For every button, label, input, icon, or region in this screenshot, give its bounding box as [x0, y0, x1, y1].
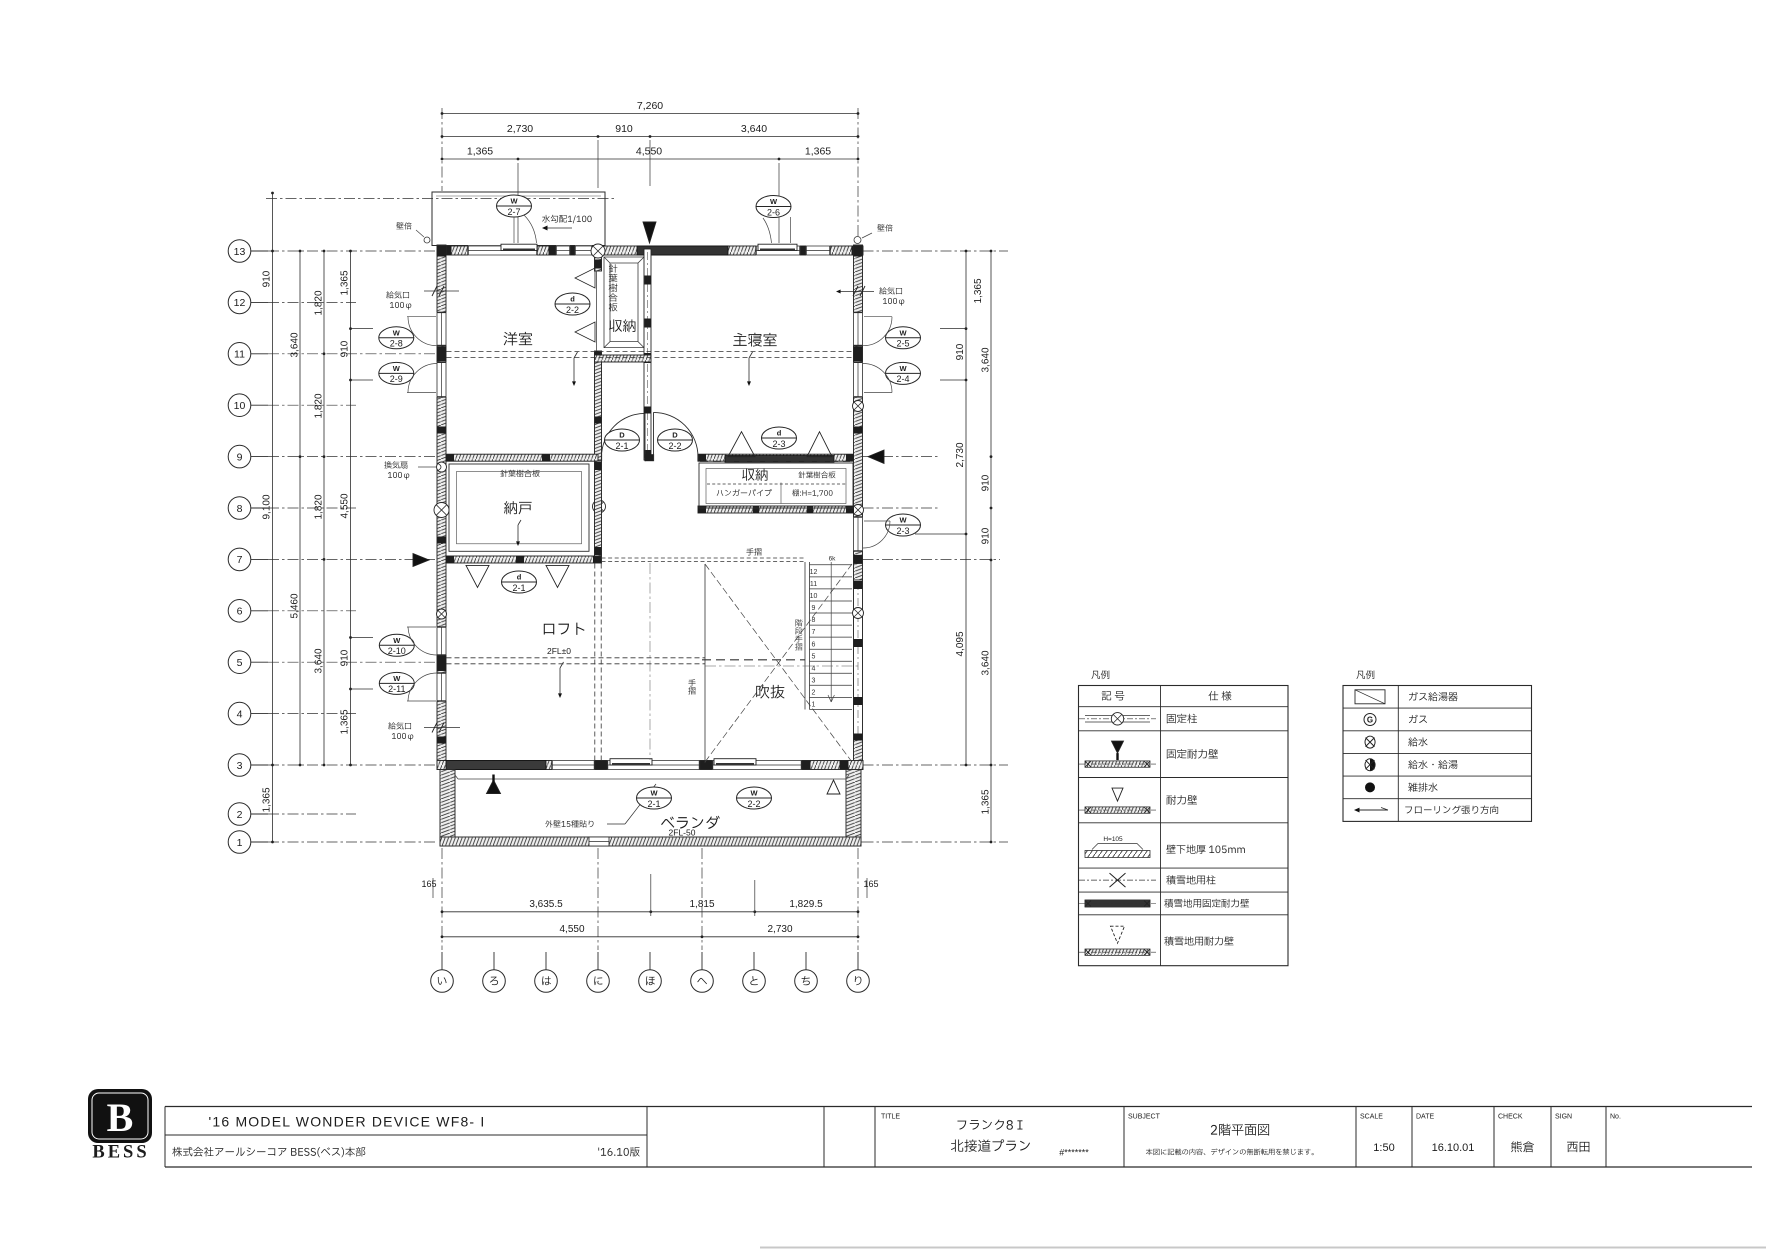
svg-text:1,820: 1,820 — [314, 494, 325, 519]
svg-text:2,730: 2,730 — [767, 924, 792, 935]
svg-text:3,640: 3,640 — [290, 332, 301, 357]
svg-text:TITLE: TITLE — [881, 1114, 900, 1121]
svg-text:G: G — [1367, 715, 1373, 724]
svg-text:2FL±0: 2FL±0 — [547, 646, 571, 656]
svg-text:4,550: 4,550 — [636, 145, 662, 157]
svg-text:1,365: 1,365 — [262, 787, 273, 812]
svg-text:9: 9 — [812, 605, 816, 612]
svg-text:910: 910 — [615, 123, 633, 135]
svg-text:2-7: 2-7 — [507, 207, 520, 217]
svg-text:6k: 6k — [829, 555, 837, 562]
svg-text:910: 910 — [955, 343, 966, 360]
svg-text:910: 910 — [340, 649, 351, 666]
svg-text:4: 4 — [812, 665, 816, 672]
svg-text:2FL-50: 2FL-50 — [669, 828, 696, 838]
svg-text:6: 6 — [237, 606, 243, 618]
svg-text:W: W — [510, 197, 518, 206]
svg-text:3: 3 — [812, 677, 816, 684]
svg-text:910: 910 — [262, 270, 273, 287]
svg-text:SIGN: SIGN — [1555, 1114, 1572, 1121]
svg-text:1,365: 1,365 — [340, 709, 351, 734]
svg-text:2-2: 2-2 — [668, 441, 681, 451]
svg-text:CHECK: CHECK — [1498, 1114, 1523, 1121]
svg-text:3,640: 3,640 — [981, 650, 992, 675]
svg-text:W: W — [899, 516, 907, 525]
svg-text:2-2: 2-2 — [566, 305, 579, 315]
svg-text:1,829.5: 1,829.5 — [789, 899, 823, 910]
svg-text:1,820: 1,820 — [314, 393, 325, 418]
svg-text:d: d — [517, 573, 522, 582]
svg-text:D: D — [619, 431, 625, 440]
svg-text:W: W — [650, 789, 658, 798]
svg-text:2-4: 2-4 — [896, 374, 909, 384]
svg-text:8: 8 — [237, 503, 243, 515]
svg-text:910: 910 — [340, 340, 351, 357]
svg-text:2,730: 2,730 — [955, 442, 966, 467]
svg-text:W: W — [393, 364, 401, 373]
svg-text:W: W — [899, 328, 907, 337]
svg-text:12: 12 — [810, 569, 818, 576]
svg-text:2-5: 2-5 — [896, 339, 909, 349]
svg-text:2,730: 2,730 — [507, 123, 533, 135]
svg-text:1: 1 — [237, 837, 243, 849]
svg-text:W: W — [770, 197, 778, 206]
svg-text:13: 13 — [234, 246, 246, 258]
svg-text:2-11: 2-11 — [388, 684, 405, 694]
svg-text:1:50: 1:50 — [1373, 1142, 1394, 1154]
svg-text:2-3: 2-3 — [896, 526, 909, 536]
svg-text:2-2: 2-2 — [747, 799, 760, 809]
svg-text:910: 910 — [981, 527, 992, 544]
svg-text:7: 7 — [237, 554, 243, 566]
svg-text:d: d — [777, 429, 782, 438]
svg-text:10: 10 — [810, 593, 818, 600]
svg-text:11: 11 — [234, 349, 245, 361]
svg-text:4: 4 — [237, 708, 243, 720]
svg-text:W: W — [393, 636, 401, 645]
svg-text:2-10: 2-10 — [388, 646, 406, 656]
svg-text:5,460: 5,460 — [290, 593, 301, 618]
svg-text:3: 3 — [237, 760, 243, 772]
svg-text:9,100: 9,100 — [262, 494, 273, 519]
svg-text:165: 165 — [421, 879, 436, 889]
svg-text:2-1: 2-1 — [615, 441, 628, 451]
svg-text:3,640: 3,640 — [314, 648, 325, 673]
svg-text:2: 2 — [812, 690, 816, 697]
svg-text:16.10.01: 16.10.01 — [1432, 1142, 1475, 1154]
svg-text:5: 5 — [237, 657, 243, 669]
svg-text:2-3: 2-3 — [772, 439, 785, 449]
svg-text:d: d — [570, 295, 575, 304]
svg-text:B: B — [107, 1095, 134, 1140]
svg-text:165: 165 — [863, 879, 878, 889]
svg-text:3,640: 3,640 — [981, 347, 992, 372]
svg-text:2-9: 2-9 — [390, 374, 403, 384]
svg-text:4,095: 4,095 — [955, 631, 966, 656]
svg-text:No.: No. — [1610, 1114, 1621, 1121]
svg-text:1,365: 1,365 — [973, 278, 984, 303]
svg-text:4,550: 4,550 — [559, 924, 584, 935]
svg-text:1,365: 1,365 — [805, 145, 831, 157]
svg-text:1,820: 1,820 — [314, 290, 325, 315]
svg-text:W: W — [750, 789, 758, 798]
svg-text:910: 910 — [981, 474, 992, 491]
svg-text:2-1: 2-1 — [512, 583, 525, 593]
svg-text:D: D — [672, 431, 678, 440]
svg-text:3,635.5: 3,635.5 — [529, 899, 563, 910]
svg-text:SCALE: SCALE — [1360, 1114, 1383, 1121]
svg-text:#*******: #******* — [1059, 1148, 1089, 1158]
svg-text:9: 9 — [237, 451, 243, 463]
svg-text:8: 8 — [812, 617, 816, 624]
svg-text:2-6: 2-6 — [767, 207, 780, 217]
svg-text:7: 7 — [812, 629, 816, 636]
svg-text:4,550: 4,550 — [340, 493, 351, 518]
svg-text:5: 5 — [812, 653, 816, 660]
svg-text:6: 6 — [812, 641, 816, 648]
svg-text:SUBJECT: SUBJECT — [1128, 1114, 1161, 1121]
svg-text:W: W — [899, 364, 907, 373]
svg-text:3,640: 3,640 — [741, 123, 767, 135]
svg-text:2: 2 — [237, 809, 243, 821]
svg-text:11: 11 — [810, 581, 817, 588]
svg-text:2-8: 2-8 — [390, 339, 403, 349]
svg-text:2-1: 2-1 — [647, 799, 660, 809]
svg-text:10: 10 — [234, 400, 246, 412]
svg-text:1,815: 1,815 — [689, 899, 714, 910]
svg-text:1,365: 1,365 — [467, 145, 493, 157]
svg-text:W: W — [393, 674, 401, 683]
svg-text:BESS: BESS — [92, 1143, 149, 1163]
svg-text:H=105: H=105 — [1103, 836, 1123, 843]
svg-text:DATE: DATE — [1416, 1114, 1434, 1121]
svg-text:1: 1 — [812, 702, 816, 709]
svg-text:'16 MODEL WONDER DEVICE WF8- I: '16 MODEL WONDER DEVICE WF8- I — [209, 1114, 486, 1130]
svg-text:1,365: 1,365 — [981, 789, 992, 814]
svg-text:1,365: 1,365 — [340, 270, 351, 295]
svg-text:7,260: 7,260 — [637, 100, 663, 112]
svg-text:12: 12 — [234, 297, 246, 309]
svg-text:W: W — [393, 328, 401, 337]
